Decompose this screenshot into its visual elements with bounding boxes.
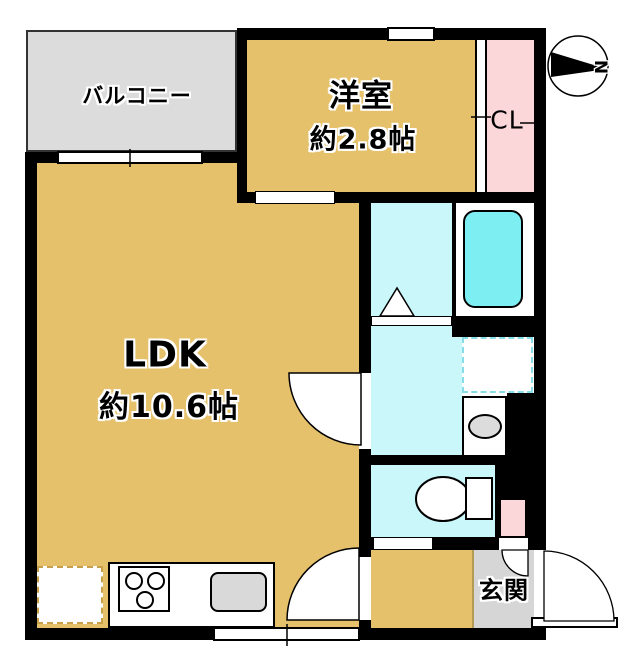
- western-room-size: 約2.8帖: [310, 118, 417, 157]
- closet-sliding-door-icon: [475, 40, 487, 192]
- wall-right: [534, 28, 546, 550]
- closet-label: CL: [490, 106, 523, 135]
- stove-burner: [125, 572, 143, 590]
- washing-machine-icon: [462, 337, 533, 393]
- bathtub-icon: [463, 210, 523, 308]
- stove-icon: [118, 566, 170, 612]
- washroom-threshold-icon: [371, 316, 452, 326]
- washbasin-bowl: [468, 414, 502, 439]
- sink-icon: [210, 572, 267, 612]
- entrance-closet-doorway: [499, 538, 528, 550]
- wall-below-bath: [452, 316, 536, 337]
- north-label: N: [590, 60, 610, 74]
- western-room-label: 洋室: [329, 71, 393, 116]
- ldk-hallway-doorway: [359, 557, 371, 620]
- toilet-doorway: [373, 537, 433, 550]
- washroom-lower-area: [371, 326, 462, 455]
- ldk-label: LDK: [123, 335, 207, 376]
- stove-burner: [147, 572, 165, 590]
- entry-door-leaf: [531, 617, 618, 628]
- entry-door-swing-icon: [544, 551, 614, 621]
- balcony-window-icon: [57, 151, 203, 164]
- north-arrow-icon: N: [548, 36, 610, 96]
- top-window-icon: [387, 27, 435, 41]
- wall-western-room-left: [237, 28, 247, 203]
- entrance-closet-area: [499, 498, 527, 538]
- wall-ldk-right-stub: [359, 620, 371, 628]
- toilet-room-area: [367, 465, 495, 537]
- wall-ldk-right-upper: [359, 192, 371, 373]
- bottom-window-icon: [213, 627, 360, 641]
- balcony-label: バルコニー: [82, 80, 192, 110]
- entrance-label: 玄関: [479, 571, 529, 606]
- wall-left: [25, 152, 37, 640]
- ldk-washroom-doorway: [359, 373, 371, 449]
- washbasin-icon: [462, 396, 507, 457]
- ldk-size: 約10.6帖: [99, 382, 239, 426]
- hallway-area: [371, 550, 472, 628]
- refrigerator-icon: [37, 566, 103, 624]
- stove-burner: [136, 591, 154, 609]
- floor-plan: N バルコニー 洋室 約2.8帖 CL LDK 約10.6帖 玄関: [0, 0, 644, 671]
- wall-washroom-toilet: [360, 455, 536, 465]
- entry-doorway: [534, 550, 546, 620]
- wall-bath-left: [452, 203, 456, 316]
- washroom-upper-area: [371, 203, 456, 326]
- western-room-sliding-door-icon: [255, 191, 335, 204]
